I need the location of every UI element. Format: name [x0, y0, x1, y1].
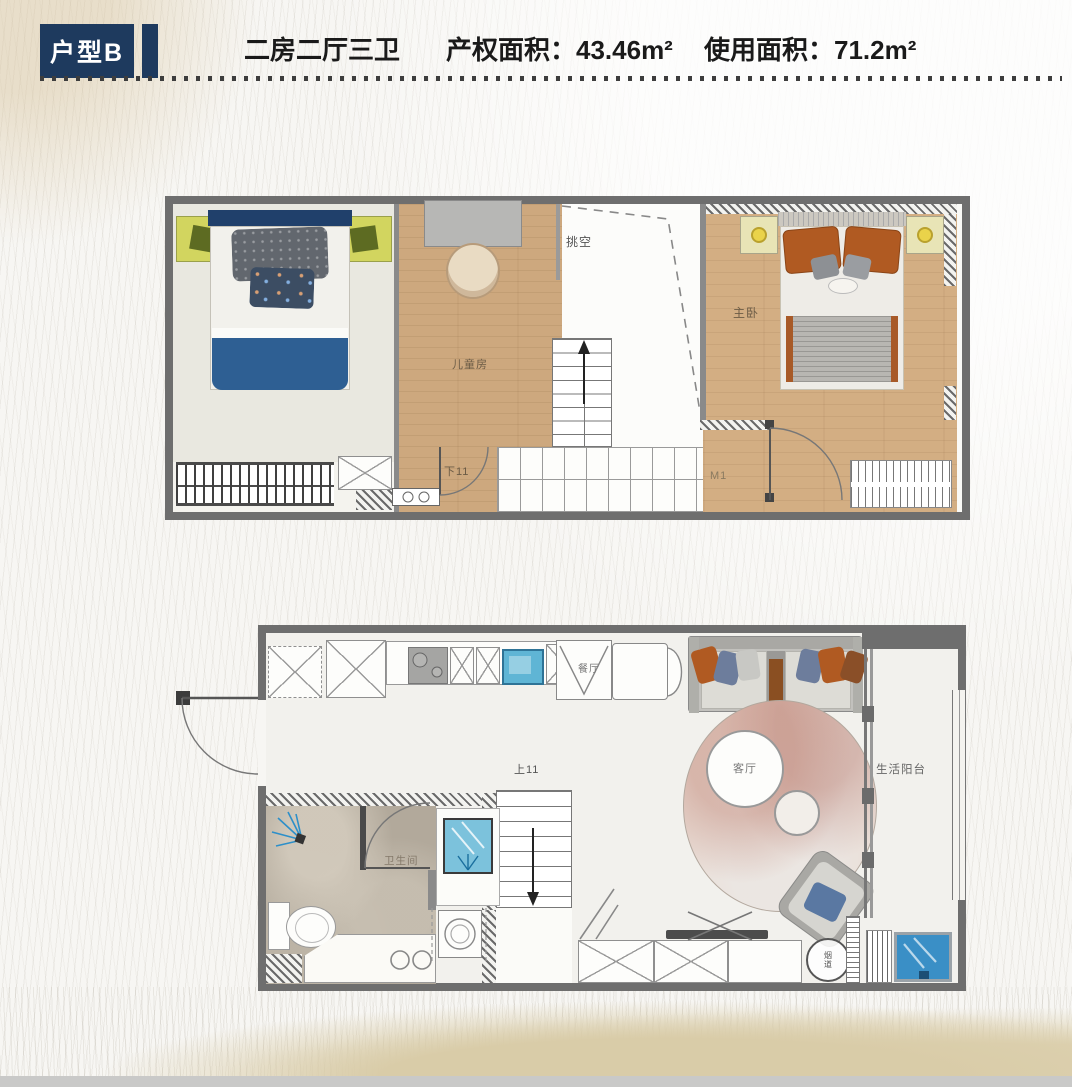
- flue-duct: 烟道: [806, 938, 850, 982]
- shower-glass-partition: [360, 806, 366, 870]
- balcony-sliding-door: [864, 649, 867, 918]
- flue-label: 烟道: [823, 951, 834, 969]
- wardrobe: [850, 460, 952, 508]
- master-bed: [778, 212, 906, 390]
- interior-wall: [428, 870, 436, 910]
- wall-hatch: [266, 954, 302, 983]
- balcony-sliding-door: [870, 649, 873, 918]
- interior-wall: [394, 204, 399, 512]
- balcony-wall: [862, 633, 966, 649]
- photo-frame-icon: [349, 225, 378, 252]
- coffee-table-small: [774, 790, 820, 836]
- kitchen-cabinet-icon: [326, 640, 386, 698]
- master-bedroom-label: 主卧: [733, 304, 759, 321]
- door-frame-segment: [862, 852, 874, 868]
- wall-hatch: [700, 420, 770, 430]
- bathroom-label: 卫生间: [384, 853, 419, 868]
- kids-desk: [424, 200, 522, 247]
- wall-hatch: [482, 910, 496, 983]
- lower-stairs: [496, 790, 572, 908]
- kitchen-cabinet-icon: [450, 647, 474, 684]
- bed-headboard: [208, 210, 352, 226]
- stairs-up-label: 上11: [514, 761, 539, 777]
- washing-machine: [438, 910, 482, 958]
- unit-type-label: 户型B: [50, 33, 124, 69]
- stairs-down-label: 下11: [444, 463, 469, 479]
- breakfast-tray: [828, 278, 858, 294]
- stair-divider: [584, 390, 585, 447]
- drying-rack: [846, 916, 860, 983]
- kids-chair: [446, 243, 500, 299]
- stair-landing: [496, 908, 572, 983]
- basin-drain: [919, 971, 929, 979]
- property-area-text: 产权面积：43.46m²: [446, 30, 673, 67]
- sink-basin: [509, 656, 531, 674]
- throw-pillow: [735, 649, 761, 682]
- bed-quilt: [249, 267, 314, 309]
- lamp-icon: [751, 227, 767, 243]
- bed-headboard: [778, 212, 906, 226]
- toilet-seat: [295, 913, 329, 943]
- tv-cabinet: [728, 940, 802, 983]
- balcony-label: 生活阳台: [876, 761, 926, 777]
- tv-cabinet-icon: [578, 940, 654, 983]
- lamp-icon: [917, 227, 933, 243]
- tv-screen: [666, 930, 768, 939]
- dining-label: 餐厅: [578, 660, 600, 675]
- door-code-label: M1: [710, 470, 727, 482]
- kitchen-cabinet-icon: [476, 647, 500, 684]
- kitchen-cabinet-icon: [268, 646, 322, 698]
- laundry-basin: [894, 932, 952, 982]
- interior-wall: [700, 204, 706, 430]
- second-bedroom-bed: [208, 210, 352, 392]
- window-hatch: [944, 214, 956, 286]
- utility-unit: [866, 930, 892, 983]
- bottom-bar: [0, 1076, 1072, 1087]
- living-label: 客厅: [733, 760, 757, 776]
- window-hatch: [944, 386, 956, 420]
- balcony-window: [952, 690, 966, 900]
- door-handle: [176, 691, 190, 705]
- upper-landing-treads: [497, 447, 722, 512]
- bed-blanket: [786, 316, 898, 382]
- small-basin: [392, 488, 440, 506]
- entry-door-opening: [258, 700, 266, 786]
- dotted-divider: [40, 76, 1062, 81]
- interior-wall: [556, 204, 560, 280]
- dining-table: [612, 643, 668, 700]
- vanity-sink: [443, 818, 493, 874]
- kids-room-label: 儿童房: [452, 356, 488, 372]
- door-frame-segment: [862, 788, 874, 804]
- upper-stairs: [552, 338, 612, 447]
- bathroom-wall-hatch: [266, 793, 482, 806]
- entry-door-arc: [182, 698, 258, 774]
- cabinet-icon: [338, 456, 392, 490]
- door-frame-segment: [862, 706, 874, 722]
- tv-cabinet-icon: [654, 940, 728, 983]
- void-label: 挑空: [566, 233, 592, 250]
- radiator-grille: [176, 462, 334, 506]
- unit-type-badge: 户型B: [40, 24, 134, 78]
- wall-hatch: [356, 490, 392, 510]
- badge-accent-bar: [142, 24, 158, 78]
- stove: [408, 647, 448, 684]
- hills-decoration: [0, 987, 1072, 1077]
- room-layout-title: 二房二厅三卫: [244, 30, 400, 67]
- usable-area-text: 使用面积：71.2m²: [704, 30, 916, 67]
- sofa-tray: [769, 659, 783, 701]
- floorplan-page: 户型B 二房二厅三卫 产权面积：43.46m² 使用面积：71.2m²: [0, 0, 1072, 1087]
- kitchen-sink: [502, 649, 544, 685]
- bed-blanket: [212, 338, 348, 390]
